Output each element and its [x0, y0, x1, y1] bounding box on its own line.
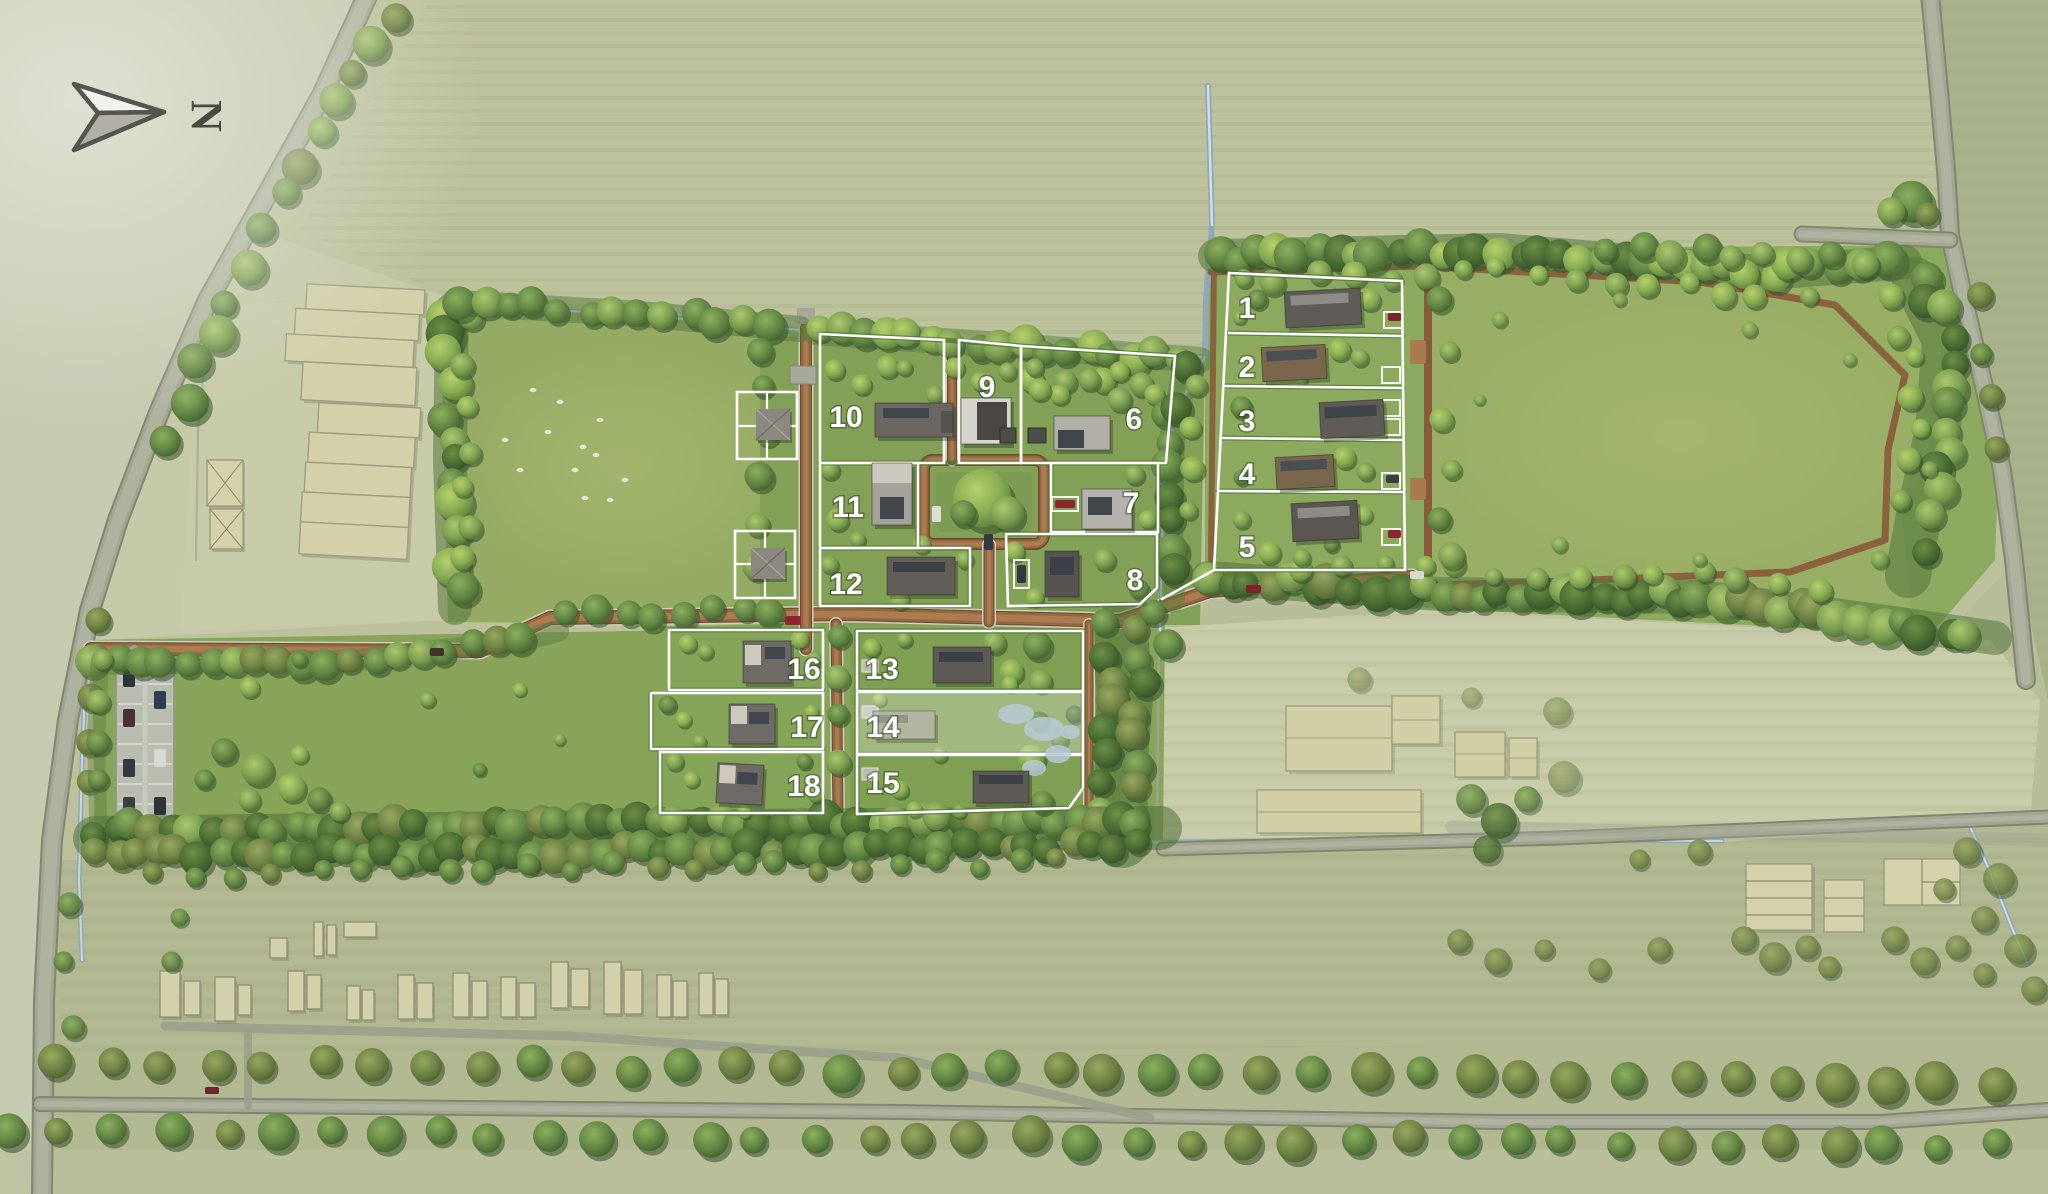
svg-text:4: 4 [1239, 458, 1256, 491]
svg-text:9: 9 [979, 371, 996, 404]
svg-text:6: 6 [1126, 403, 1143, 436]
svg-text:18: 18 [787, 770, 820, 803]
svg-text:11: 11 [832, 491, 864, 524]
svg-text:3: 3 [1239, 405, 1256, 438]
svg-text:1: 1 [1239, 292, 1256, 325]
svg-text:5: 5 [1239, 531, 1256, 564]
svg-text:14: 14 [866, 711, 900, 744]
svg-text:15: 15 [866, 767, 899, 800]
svg-text:8: 8 [1127, 564, 1144, 597]
svg-text:N: N [182, 100, 231, 132]
svg-text:17: 17 [790, 711, 823, 744]
svg-text:10: 10 [829, 401, 862, 434]
svg-text:2: 2 [1239, 351, 1256, 384]
svg-text:16: 16 [787, 653, 820, 686]
svg-text:7: 7 [1123, 487, 1140, 520]
svg-text:13: 13 [865, 653, 898, 686]
svg-text:12: 12 [829, 568, 862, 601]
